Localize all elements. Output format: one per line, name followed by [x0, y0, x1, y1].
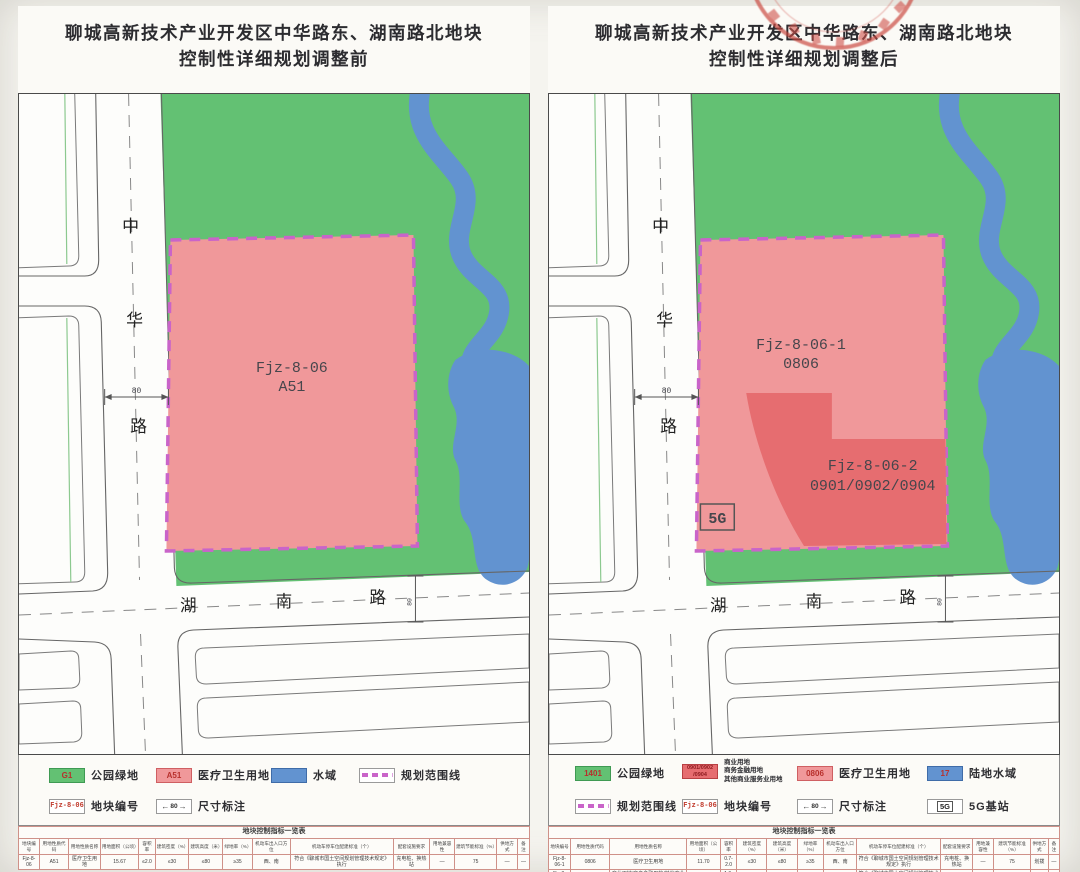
table-cell: — — [972, 855, 993, 870]
south-west-parcel — [549, 651, 610, 690]
column-header: 用地性质代码 — [39, 839, 68, 855]
south-west-parcel — [549, 701, 612, 744]
table-title-row: 地块控制指标一览表 — [549, 827, 1060, 839]
table-cell: 75 — [455, 855, 497, 870]
water-swatch — [271, 768, 307, 783]
table-cell: Fjz-8-06 — [19, 855, 40, 870]
water-swatch: 17 — [927, 766, 963, 781]
table-cell: ≤30 — [737, 855, 767, 870]
column-header: 用地兼容性 — [972, 839, 993, 855]
road-label-hu: 湖 — [710, 597, 726, 615]
table-header-row: 地块编号用地性质代码用地性质名称用地面积（公顷）容积率建筑密度（%）建筑高度（米… — [549, 839, 1060, 855]
table-cell: ≤30 — [155, 855, 189, 870]
official-stamp — [742, 0, 922, 62]
legend-item-5g: 5G 5G基站 — [927, 798, 1010, 814]
table-title: 地块控制指标一览表 — [549, 827, 1060, 839]
column-header: 用地性质代码 — [571, 839, 610, 855]
parcel1-code: Fjz-8-06-1 — [756, 338, 846, 354]
title-line2: 控制性详细规划调整前 — [18, 46, 530, 72]
table-cell: — — [497, 855, 518, 870]
legend-item-water: 17 陆地水域 — [927, 765, 1017, 781]
column-header: 供地方式 — [497, 839, 518, 855]
parcel-code-swatch: Fjz-8-06 — [682, 799, 718, 814]
legend-item-park: 1401 公园绿地 — [575, 765, 665, 781]
park-swatch: 1401 — [575, 766, 611, 781]
table-cell: — — [517, 855, 529, 870]
column-header: 用地性质名称 — [69, 839, 101, 855]
legend-before: G1 公园绿地 A51 医疗卫生用地 水域 规划范围线 Fjz-8-06 地块编… — [18, 755, 530, 826]
west-parcel-b — [18, 316, 85, 584]
table-cell: ≤80 — [189, 855, 223, 870]
boundary-swatch — [575, 799, 611, 814]
table-cell: ≤80 — [767, 855, 797, 870]
legend-item-parcel-code: Fjz-8-06 地块编号 — [49, 798, 139, 814]
west-parcel-b — [548, 316, 615, 584]
arrow-right-icon: → — [820, 802, 828, 811]
west-parcel-a — [548, 93, 609, 268]
panel-after: 聊城高新技术产业开发区中华路东、湖南路北地块 控制性详细规划调整后 — [548, 6, 1060, 872]
column-header: 容积率 — [720, 839, 737, 855]
dimension-label: 80 — [936, 598, 943, 606]
plan-map-before: 80 80 中 华 路 湖 南 路 Fjz-8-06 A51 — [18, 93, 530, 755]
road-label-hu: 湖 — [180, 597, 196, 615]
table-cell: 西、南 — [252, 855, 290, 870]
table-cell: — — [1048, 855, 1059, 870]
road-label-lu2: 路 — [369, 589, 385, 607]
panel-title-before: 聊城高新技术产业开发区中华路东、湖南路北地块 控制性详细规划调整前 — [18, 6, 530, 93]
column-header: 备注 — [1048, 839, 1059, 855]
commercial-swatch: 0901/0902 /0904 — [682, 764, 718, 779]
table-cell: 医疗卫生用地 — [69, 855, 101, 870]
table-cell: — — [430, 855, 455, 870]
column-header: 地块编号 — [549, 839, 571, 855]
legend-item-boundary: 规划范围线 — [575, 798, 677, 814]
plan-map-after: 80 80 中 华 路 湖 南 路 Fjz-8-06-1 0806 Fjz-8-… — [548, 93, 1060, 755]
legend-item-park: G1 公园绿地 — [49, 767, 139, 783]
hospital-swatch: A51 — [156, 768, 192, 783]
panel-before: 聊城高新技术产业开发区中华路东、湖南路北地块 控制性详细规划调整前 — [18, 6, 530, 870]
parcel1-use-code: 0806 — [783, 357, 819, 373]
arrow-left-icon: ← — [802, 802, 810, 811]
south-west-parcel — [19, 701, 82, 744]
column-header: 机动车出入口方位 — [824, 839, 857, 855]
column-header: 容积率 — [139, 839, 156, 855]
stamp-characters — [768, 1, 907, 48]
table-title: 地块控制指标一览表 — [19, 827, 530, 839]
dimension-swatch: ←80→ — [156, 799, 192, 814]
park-swatch: G1 — [49, 768, 85, 783]
road-label-lu: 路 — [660, 417, 677, 436]
table-row: Fjz-8-06A51医疗卫生用地15.67≤2.0≤30≤80≥35西、南符合… — [19, 855, 530, 870]
table-title-row: 地块控制指标一览表 — [19, 827, 530, 839]
legend-after: 1401 公园绿地 0901/0902 /0904 商业用地 商务金融用地 其他… — [548, 755, 1060, 826]
table-cell: 0.7-2.0 — [720, 855, 737, 870]
scanned-plan-sheet: 聊城高新技术产业开发区中华路东、湖南路北地块 控制性详细规划调整前 — [0, 0, 1080, 872]
table-cell: ≥35 — [797, 855, 823, 870]
legend-item-boundary: 规划范围线 — [359, 767, 461, 783]
boundary-swatch — [359, 768, 395, 783]
parcel-code: Fjz-8-06 — [256, 361, 328, 377]
table-row: Fjz-8-06-10806医疗卫生用地11.700.7-2.0≤30≤80≥3… — [549, 855, 1060, 870]
table-cell: A51 — [39, 855, 68, 870]
column-header: 供地方式 — [1030, 839, 1048, 855]
table-cell: ≥35 — [223, 855, 252, 870]
parcel-use-code: A51 — [278, 380, 305, 396]
table-cell: 11.70 — [687, 855, 720, 870]
legend-item-hospital: 0806 医疗卫生用地 — [797, 765, 911, 781]
legend-item-dimension: ←80→ 尺寸标注 — [797, 798, 887, 814]
dimension-label: 80 — [662, 387, 672, 396]
column-header: 用地面积（公顷） — [100, 839, 138, 855]
column-header: 用地面积（公顷） — [687, 839, 720, 855]
legend-item-water: 水域 — [271, 767, 337, 783]
road-label-zhong: 中 — [652, 217, 669, 236]
dimension-swatch: ←80→ — [797, 799, 833, 814]
legend-item-commercial: 0901/0902 /0904 商业用地 商务金融用地 其他商业服务业用地 — [682, 759, 783, 784]
column-header: 建筑高度（米） — [767, 839, 797, 855]
column-header: 地块编号 — [19, 839, 40, 855]
road-label-hua: 华 — [656, 311, 673, 330]
column-header: 建筑高度（米） — [189, 839, 223, 855]
table-cell: 符合《聊城市国土空间规划管理技术规定》执行 — [290, 855, 393, 870]
column-header: 建筑密度（%） — [737, 839, 767, 855]
column-header: 机动车出入口方位 — [252, 839, 290, 855]
table-cell: Fjz-8-06-1 — [549, 855, 571, 870]
hospital-swatch: 0806 — [797, 766, 833, 781]
table-cell: 充电桩、换热站 — [393, 855, 430, 870]
legend-item-dimension: ←80→ 尺寸标注 — [156, 798, 246, 814]
road-label-nan: 南 — [276, 593, 292, 611]
column-header: 绿地率（%） — [223, 839, 252, 855]
road-label-hua: 华 — [126, 311, 143, 330]
title-line1: 聊城高新技术产业开发区中华路东、湖南路北地块 — [18, 20, 530, 46]
south-west-parcel — [19, 651, 80, 690]
legend-item-hospital: A51 医疗卫生用地 — [156, 767, 270, 783]
arrow-left-icon: ← — [161, 802, 169, 811]
west-parcel-a — [18, 93, 79, 268]
dimension-label: 80 — [132, 387, 142, 396]
parcel2-use-code: 0901/0902/0904 — [810, 479, 936, 495]
parcel-code-swatch: Fjz-8-06 — [49, 799, 85, 814]
table-cell: 15.67 — [100, 855, 138, 870]
5g-station-label: 5G — [708, 512, 726, 528]
control-indicators-table-after: 地块控制指标一览表地块编号用地性质代码用地性质名称用地面积（公顷）容积率建筑密度… — [548, 826, 1060, 872]
column-header: 建筑节能标准（%） — [455, 839, 497, 855]
road-label-lu: 路 — [130, 417, 147, 436]
column-header: 机动车停车位配建标准（个） — [857, 839, 941, 855]
column-header: 用地兼容性 — [430, 839, 455, 855]
road-label-lu2: 路 — [899, 589, 915, 607]
5g-swatch: 5G — [927, 799, 963, 814]
arrow-right-icon: → — [179, 802, 187, 811]
column-header: 用地性质名称 — [610, 839, 687, 855]
control-indicators-table-before: 地块控制指标一览表地块编号用地性质代码用地性质名称用地面积（公顷）容积率建筑密度… — [18, 826, 530, 870]
table-cell: ≤2.0 — [139, 855, 156, 870]
table-cell: 西、南 — [824, 855, 857, 870]
column-header: 绿地率（%） — [797, 839, 823, 855]
table-cell: 符合《聊城市国土空间规划管理技术规定》执行 — [857, 855, 941, 870]
table-cell: 75 — [994, 855, 1031, 870]
dimension-label: 80 — [406, 598, 413, 606]
column-header: 建筑节能标准（%） — [994, 839, 1031, 855]
column-header: 机动车停车位配建标准（个） — [290, 839, 393, 855]
road-label-nan: 南 — [806, 593, 822, 611]
column-header: 配套设施要求 — [393, 839, 430, 855]
road-label-zhong: 中 — [122, 217, 139, 236]
legend-item-parcel-code: Fjz-8-06 地块编号 — [682, 798, 772, 814]
column-header: 配套设施要求 — [941, 839, 973, 855]
table-header-row: 地块编号用地性质代码用地性质名称用地面积（公顷）容积率建筑密度（%）建筑高度（米… — [19, 839, 530, 855]
column-header: 备注 — [517, 839, 529, 855]
parcel2-code: Fjz-8-06-2 — [828, 459, 918, 475]
column-header: 建筑密度（%） — [155, 839, 189, 855]
table-cell: 医疗卫生用地 — [610, 855, 687, 870]
table-cell: 0806 — [571, 855, 610, 870]
table-cell: 充电桩、换热站 — [941, 855, 973, 870]
table-cell: 划拨 — [1030, 855, 1048, 870]
